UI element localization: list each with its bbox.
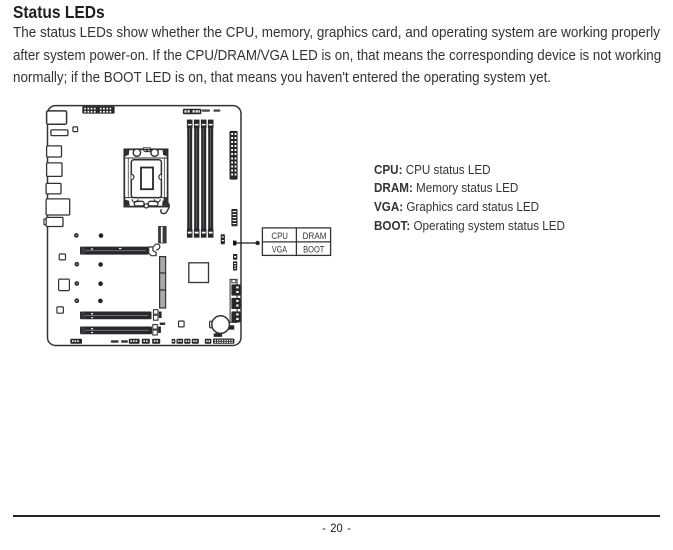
svg-text:CPU: CPU <box>271 231 288 242</box>
svg-text:DRAM: DRAM <box>303 231 327 242</box>
svg-text:VGA: VGA <box>272 245 288 256</box>
svg-text:BOOT: BOOT <box>303 245 324 256</box>
